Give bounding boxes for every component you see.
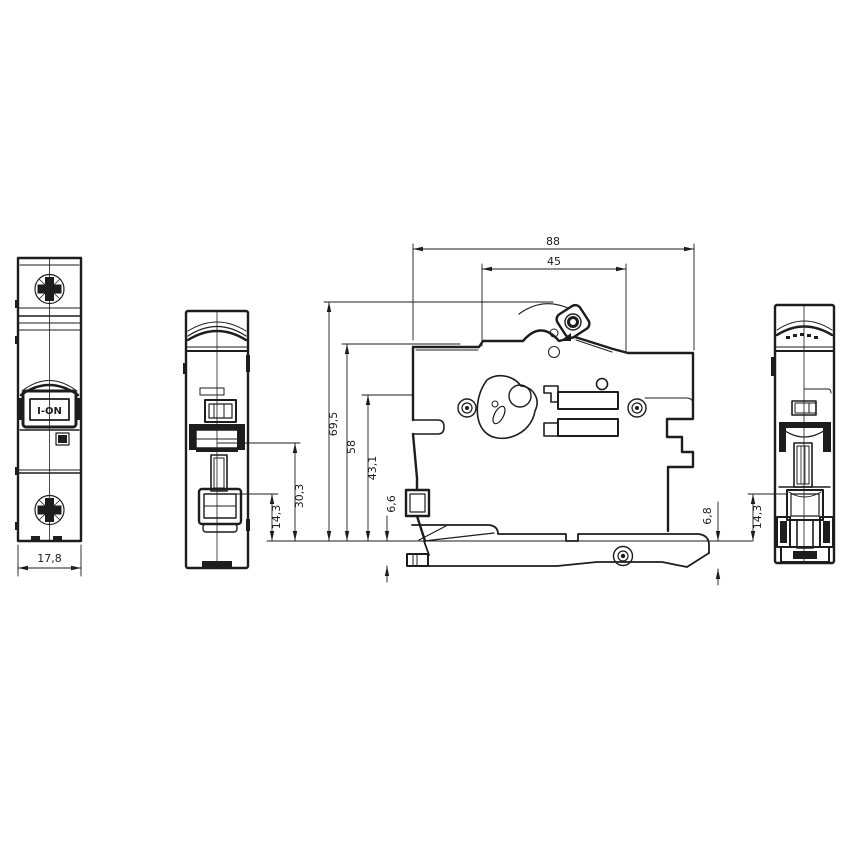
front-foot-notch-right [53, 536, 62, 541]
terminal-bar-lower [544, 419, 618, 436]
din-clip-foot [407, 525, 709, 567]
front-view: I-ON 17,8 [15, 258, 81, 576]
vent-dash-2 [793, 334, 797, 337]
dim-14-3-right-label: 14,3 [751, 505, 764, 530]
dim-below-rail-left: 6,6 [385, 495, 398, 582]
left-clip-block [406, 490, 429, 516]
terminal-band-dark [189, 424, 245, 430]
dim-6-8-label: 6,8 [701, 507, 714, 525]
terminal-cage-lower [199, 489, 241, 532]
dim-height-mid: 30,3 [217, 443, 306, 541]
technical-drawing-page: I-ON 17,8 [0, 0, 850, 850]
left-edge-nub [183, 363, 187, 374]
dim-58-label: 58 [345, 440, 358, 454]
dim-overall-depth: 88 [413, 235, 694, 350]
left-view-lower-nub [246, 519, 250, 531]
right-cage-dark-right [823, 428, 831, 452]
dim-below-rail-right: 6,8 [701, 502, 720, 585]
dim-front-width: 17,8 [18, 545, 81, 576]
dim-14-3-left-label: 14,3 [270, 505, 283, 530]
vent-dash-5 [814, 336, 818, 339]
dim-45-label: 45 [547, 255, 561, 268]
dim-6-6-label: 6,6 [385, 495, 398, 513]
horizontal-dimensions: 88 45 [413, 235, 694, 351]
left-view-bottom-bar [202, 561, 232, 567]
pozidriv-screw-top-icon [35, 275, 64, 304]
right-screwdriver-pillar [794, 443, 812, 487]
left-view-plate [200, 388, 224, 395]
right-view-left-nub [771, 357, 775, 376]
dim-height-body-top: 58 [342, 344, 460, 541]
rivet-right [628, 399, 646, 417]
main-profile-view: 6,8 [406, 303, 720, 585]
test-button [56, 433, 69, 445]
right-din-clip-right [820, 517, 833, 547]
pozidriv-screw-bottom-icon [35, 496, 64, 525]
vent-dash-3 [800, 333, 804, 336]
lever-knob [554, 303, 591, 340]
breaker-dimension-drawing: I-ON 17,8 [0, 0, 850, 850]
cage-dark-left [189, 428, 196, 450]
cage-dark-right [237, 428, 245, 450]
front-foot-notch-left [31, 536, 40, 541]
front-left-nub-4 [15, 522, 18, 530]
right-cage-curve [781, 428, 828, 437]
dim-88-label: 88 [546, 235, 560, 248]
right-cage-dark-left [779, 428, 786, 452]
vent-dash-4 [807, 334, 811, 337]
left-side-view [183, 311, 250, 568]
rivet-left [458, 399, 476, 417]
housing-hole [549, 347, 560, 358]
din-rail-hook-left [414, 420, 444, 434]
right-edge-nub [246, 355, 250, 372]
vent-dash-1 [786, 336, 790, 339]
right-side-view [771, 305, 834, 563]
cage-dark-bottom [196, 448, 238, 452]
dim-43-1-label: 43,1 [366, 456, 379, 481]
right-view-step-line [804, 389, 831, 393]
screwdriver-slot-pillar [211, 455, 227, 491]
dim-30-3-label: 30,3 [293, 484, 306, 509]
terminal-bar-upper [544, 386, 618, 409]
dim-front-width-label: 17,8 [37, 552, 62, 565]
trip-cam [477, 376, 537, 439]
right-din-clip-left [777, 517, 790, 547]
right-cap-arc-2 [777, 327, 832, 336]
front-left-nub-3 [15, 467, 18, 475]
terminal-screw-side [205, 400, 236, 422]
right-center-stem [797, 520, 813, 548]
right-band-dark [779, 422, 831, 428]
dim-height-overall: 69,5 [324, 302, 553, 541]
din-rail-hook-right-hidden-line [645, 398, 693, 404]
right-bottom-bar [781, 547, 829, 562]
front-left-nub-2 [15, 336, 18, 344]
vertical-dimensions: 14,3 30,3 69,5 58 [217, 302, 553, 582]
body-outline-top-right [413, 331, 693, 532]
front-left-nub-1 [15, 300, 18, 308]
dim-69-5-label: 69,5 [327, 412, 340, 437]
wiring-hole [597, 379, 608, 390]
toggle-label: I-ON [37, 406, 62, 417]
right-terminal-cage-lower [787, 490, 823, 520]
